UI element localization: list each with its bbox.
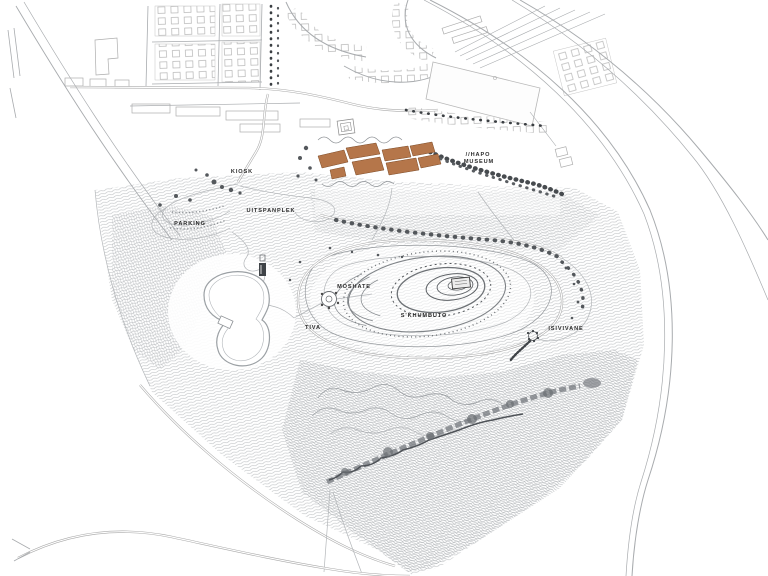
label-uitspanplek: UITSPANPLEK	[247, 208, 296, 214]
site-plan-page: KIOSK UITSPANPLEK PARKING //HAPO MUSEUM …	[0, 0, 768, 576]
label-hapo-line1: //HAPO	[466, 152, 491, 158]
label-hapo-line2: MUSEUM	[464, 159, 494, 165]
label-parking: PARKING	[174, 221, 206, 227]
hapo-museum-buildings	[318, 142, 441, 179]
label-moshate: MOSHATE	[337, 284, 371, 290]
amphitheatre-building	[452, 277, 471, 289]
label-tiva: TIVA	[305, 325, 321, 331]
label-isivivane: ISIVIVANE	[548, 326, 583, 332]
label-skhumbuto: S'KHUMBUTO	[401, 313, 448, 319]
site-plan-map: KIOSK UITSPANPLEK PARKING //HAPO MUSEUM …	[0, 0, 768, 576]
label-kiosk: KIOSK	[231, 169, 253, 175]
